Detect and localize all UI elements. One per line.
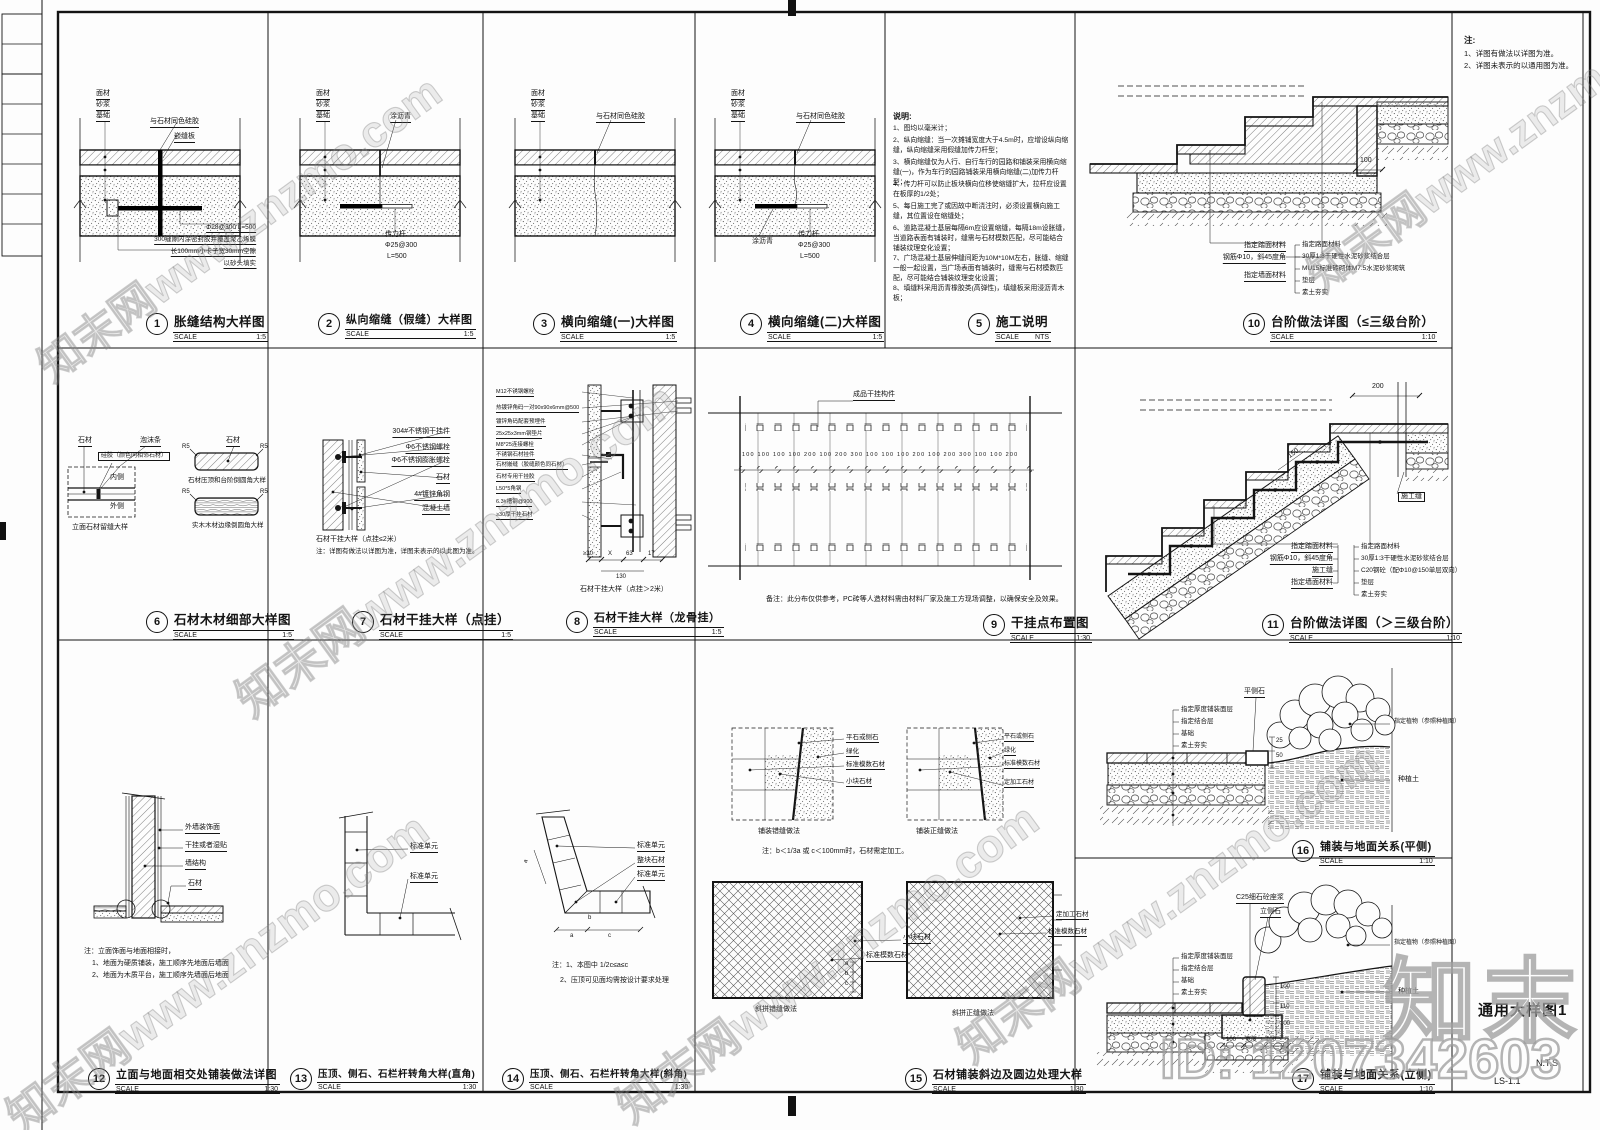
scale-value: 1:5 xyxy=(464,331,474,338)
callout-label: 指定路面材料 xyxy=(1302,241,1341,248)
spec-item: 8、填缝料采用沥青橡胶类(高弹性)，填缝板采用浸沥青木板； xyxy=(893,284,1069,304)
dim-label: c xyxy=(608,933,611,940)
detail-2-linework xyxy=(294,118,466,262)
note-text: 注：立面饰面与地面相接时， xyxy=(84,948,175,956)
callout-label: 标准单元 xyxy=(410,873,438,883)
detail-11-title: 11 台阶做法详图（＞三级台阶） SCALE1:10 xyxy=(1262,612,1462,643)
scale-value: 1:10 xyxy=(1446,635,1460,642)
detail-title-text: 台阶做法详图（≤三级台阶） xyxy=(1270,311,1437,333)
callout-label: Φ6不锈钢螺栓 xyxy=(406,444,450,454)
callout-label: 标准单元 xyxy=(637,842,665,852)
dim-label: 25 xyxy=(1276,738,1283,745)
callout-label: 指定踏面材料 xyxy=(1244,242,1286,252)
scale-label: SCALE xyxy=(174,632,197,639)
callout-label: 种植土 xyxy=(1398,988,1419,996)
layer-label: 砂浆 xyxy=(316,101,330,111)
scale-value: 1:5 xyxy=(873,334,883,341)
note-label: 以砂头填实 xyxy=(224,260,257,269)
callout-label: MU15标准砖砌体M7.5水泥砂浆砌筑 xyxy=(1302,265,1405,272)
detail-number: 2 xyxy=(318,313,340,335)
dim-label: 17 xyxy=(648,551,655,558)
detail-3-title: 3 横向缩缝(一)大样图 SCALE1:5 xyxy=(533,311,677,342)
note-label: Φ25@300 xyxy=(798,242,830,250)
callout-label: C25细石砼座浆 xyxy=(1236,894,1284,904)
scale-label: SCALE xyxy=(1011,635,1034,642)
detail-11-linework xyxy=(1106,382,1448,639)
detail-number: 3 xyxy=(533,313,555,335)
callout-label: 304#不锈钢干挂件 xyxy=(392,428,450,438)
scale-label: SCALE xyxy=(933,1086,956,1093)
dim-label: a xyxy=(845,961,848,968)
detail-5-title: 5 施工说明 SCALENTS xyxy=(968,311,1051,342)
dim-label: 100 xyxy=(1360,157,1372,165)
callout-label: 绿化 xyxy=(1004,748,1016,756)
detail-12-linework xyxy=(94,793,223,922)
callout-label: 嵌缝板 xyxy=(174,133,195,143)
detail-title-text: 横向缩缝(一)大样图 xyxy=(560,311,677,333)
strip-note-heading: 注: xyxy=(1464,36,1475,46)
caption: 石材干挂大样（点挂＞2米） xyxy=(580,586,668,594)
scale-value: 1:10 xyxy=(1419,858,1433,865)
scale-value: 1:30 xyxy=(1076,635,1090,642)
spec-item: 6、道路混凝土基层每隔6m应设置缩缝，每隔18m设胀缝，当道路表面有铺装时，缝需… xyxy=(893,224,1069,255)
scale-label: SCALE xyxy=(116,1086,139,1093)
detail-title-text: 施工说明 xyxy=(995,311,1051,333)
callout-label: 石材 xyxy=(188,880,202,890)
callout-label: 素土夯实 xyxy=(1181,742,1207,749)
callout-label: 指定厚度铺装面层 xyxy=(1181,953,1233,960)
drawing-sheet: 面材 砂浆 基础 与石材同色硅胶 嵌缝板 Φ28@300 L=500 300缝隙… xyxy=(0,0,1600,1130)
callout-label: C20钢砼（配Φ10@150单层双向） xyxy=(1361,567,1461,574)
dim-label: 63 xyxy=(626,551,633,558)
scale-value: 1:10 xyxy=(1419,1086,1433,1093)
detail-title-text: 压顶、侧石、石栏杆转角大样(直角) xyxy=(317,1066,478,1083)
detail-9-title: 9 干挂点布置图 SCALE1:30 xyxy=(983,612,1092,643)
note-text: 注：b＜1/3a 或 c＜100mm时，石材需定加工。 xyxy=(762,848,908,856)
note-label: 300缝隙内涂密封胶并覆盖聚乙烯膜 xyxy=(154,236,256,245)
callout-label: M8*25连接螺栓 xyxy=(496,442,534,450)
layer-label: 砂浆 xyxy=(96,101,110,111)
scale-value: 1:30 xyxy=(675,1084,689,1091)
detail-8-title: 8 石材干挂大样（龙骨挂） SCALE1:5 xyxy=(566,609,724,637)
dim-label: ≥30 xyxy=(583,551,593,558)
callout-label: 指定植物（参照种植图） xyxy=(1394,940,1460,947)
scale-value: 1:30 xyxy=(1070,1086,1084,1093)
scale-label: SCALE xyxy=(318,1084,341,1091)
detail-number: 1 xyxy=(146,313,168,335)
layer-label: 砂浆 xyxy=(531,101,545,111)
detail-number: 10 xyxy=(1243,313,1265,335)
callout-label: 石材 xyxy=(436,474,450,484)
callout-label: 垫层 xyxy=(1302,277,1315,284)
callout-label: 标准模数石材 xyxy=(846,761,885,770)
callout-label: 素土夯实 xyxy=(1181,989,1207,996)
radius-label: R5 xyxy=(182,489,190,496)
detail-4-linework xyxy=(709,118,881,262)
spec-item: 4、传力杆可以防止板块横向位移使缩缝扩大，拉杆应设置在板厚的1/2处； xyxy=(893,180,1069,200)
scale-value: 1:5 xyxy=(501,632,511,639)
detail-number: 8 xyxy=(566,611,588,633)
detail-8-linework xyxy=(582,385,691,571)
callout-label: 立侧石 xyxy=(1260,908,1281,918)
radius-label: R5 xyxy=(260,489,268,496)
detail-title-text: 压顶、侧石、石栏杆转角大样(斜角) xyxy=(529,1066,690,1083)
scale-value: 1:10 xyxy=(1422,334,1436,341)
note-label: L=500 xyxy=(800,253,820,261)
callout-label: ≥30厚干挂石材 xyxy=(496,512,533,520)
caption: 斜拼正缝做法 xyxy=(952,1010,994,1018)
callout-label: 外侧 xyxy=(110,503,124,511)
detail-title-text: 纵向缩缝（假缝）大样图 xyxy=(345,311,476,330)
callout-label: 种植土 xyxy=(1398,776,1419,784)
note-text: 2、压顶可见面均需按设计要求处理 xyxy=(560,977,669,985)
callout-label: 小块石材 xyxy=(846,778,872,787)
dim-label: 200 xyxy=(1372,383,1384,391)
caption: 铺装错缝做法 xyxy=(758,828,800,836)
callout-label: 内侧 xyxy=(110,474,124,482)
radius-label: R5 xyxy=(182,444,190,451)
scale-value: 1:30 xyxy=(463,1084,477,1091)
callout-label: 垫层 xyxy=(1361,579,1374,586)
callout-label: 石材嵌缝（胶缝颜色同石材） xyxy=(496,462,568,470)
sheet-name: 通用大样图1 xyxy=(1478,1002,1567,1019)
sheet-scale: N.T.S xyxy=(1536,1058,1558,1068)
detail-title-text: 干挂点布置图 xyxy=(1010,612,1092,634)
dim-label: 100 xyxy=(1266,1037,1276,1044)
callout-label: 与石材同色硅胶 xyxy=(150,118,199,128)
detail-title-text: 铺装与地面关系(平侧) xyxy=(1319,838,1435,857)
dim-label: 100 xyxy=(1226,1037,1236,1044)
layer-label: 面材 xyxy=(531,90,545,100)
callout-label: M12不锈钢螺栓 xyxy=(496,389,534,397)
scale-label: SCALE xyxy=(594,629,617,636)
scale-label: SCALE xyxy=(1320,858,1343,865)
callout-label: 平石或侧石 xyxy=(846,734,879,743)
callout-label: 平侧石 xyxy=(1244,688,1265,698)
spec-item: 7、广场混凝土基层伸缝间距为10M*10M左右，胀缝、缩缝一般一起设置，当广场表… xyxy=(893,254,1069,285)
callout-label: 30厚1:3干硬性水泥砂浆结合层 xyxy=(1302,253,1390,260)
sheet-number: LS-1.1 xyxy=(1494,1076,1521,1086)
callout-label: 素土夯实 xyxy=(1361,591,1387,598)
detail-title-text: 铺装与地面关系(立侧) xyxy=(1319,1066,1435,1085)
detail-13-linework xyxy=(339,812,461,940)
callout-label: 6.3#槽钢@900 xyxy=(496,499,532,507)
detail-16-title: 16 铺装与地面关系(平侧) SCALE1:10 xyxy=(1292,838,1435,866)
note-text: 注：详图有做法以详图为准，详图未表示的以此图为准。 xyxy=(316,548,479,555)
callout-label: 25x25x3mm钢垫片 xyxy=(496,431,542,439)
callout-label: 整块石材 xyxy=(637,857,665,867)
callout-label: 与石材同色硅胶 xyxy=(796,113,845,123)
scale-label: SCALE xyxy=(1290,635,1313,642)
detail-number: 16 xyxy=(1292,840,1314,862)
dim-label: X xyxy=(608,551,612,558)
scale-label: SCALE xyxy=(346,331,369,338)
detail-3-linework xyxy=(509,118,681,262)
layer-label: 基础 xyxy=(96,112,110,122)
strip-note: 2、详图未表示的以通用图为准。 xyxy=(1464,60,1573,72)
dim-label: c xyxy=(845,981,848,988)
callout-label: 指定厚度铺装面层 xyxy=(1181,706,1233,713)
detail-number: 6 xyxy=(146,611,168,633)
detail-17-title: 17 铺装与地面关系(立侧) SCALE1:10 xyxy=(1292,1066,1435,1094)
callout-label: 钢筋Φ10，斜45度角 xyxy=(1223,254,1286,264)
note-label: Φ25@300 xyxy=(385,242,417,250)
scale-value: 1:5 xyxy=(282,632,292,639)
callout-label: 指定结合层 xyxy=(1181,965,1214,972)
scale-label: SCALE xyxy=(174,334,197,341)
callout-label: 标准单元 xyxy=(637,871,665,881)
callout-label: 干挂或者湿贴 xyxy=(185,842,227,852)
detail-number: 9 xyxy=(983,614,1005,636)
dim-label: 50 xyxy=(1276,753,1283,760)
detail-7-title: 7 石材干挂大样（点挂） SCALE1:5 xyxy=(352,609,513,640)
spec-item: 5、每日施工完了或因故中断浇注时，必须设置横向施工缝，其位置设在缩缝处； xyxy=(893,202,1069,222)
detail-title-text: 石材木材细部大样图 xyxy=(173,609,294,631)
callout-label: 成品干挂构件 xyxy=(853,391,895,401)
layer-label: 面材 xyxy=(731,90,745,100)
callout-label: 墙结构 xyxy=(185,860,206,870)
strip-note: 1、详图有做法以详图为准。 xyxy=(1464,48,1558,60)
callout-label: 镀锌角码配套预埋件 xyxy=(496,419,546,427)
dim-label: 宽度 xyxy=(1245,1037,1257,1044)
note-label: L=500 xyxy=(387,253,407,261)
callout-label: 硅胶（颜色同相邻石材） xyxy=(98,452,170,461)
callout-label: 指定结合层 xyxy=(1181,718,1214,725)
caption: 石材压顶和台阶倒圆角大样 xyxy=(188,477,266,484)
callout-label: 绿化 xyxy=(846,748,859,757)
dim-label: 100 xyxy=(1280,1021,1290,1028)
callout-label: 与石材同色硅胶 xyxy=(596,113,645,123)
scale-label: SCALE xyxy=(1320,1086,1343,1093)
callout-label: 素土夯实 xyxy=(1302,289,1328,296)
dim-label: a xyxy=(570,933,573,940)
detail-title-text: 立面与地面相交处铺装做法详图 xyxy=(115,1066,280,1085)
callout-label: 标准模数石材 xyxy=(1048,928,1087,937)
scale-value: 1:30 xyxy=(264,1086,278,1093)
callout-label: L50*5角钢 xyxy=(496,486,521,494)
detail-number: 13 xyxy=(290,1068,312,1090)
detail-title-text: 横向缩缝(二)大样图 xyxy=(767,311,884,333)
callout-label: 涂沥青 xyxy=(390,113,411,123)
callout-label: 标准模数石材 xyxy=(866,952,908,962)
dim-string: 100 100 100 100 200 100 200 300 100 100 … xyxy=(742,452,1018,458)
callout-label: 标准模数石材 xyxy=(1004,761,1040,769)
caption: 斜拼错缝做法 xyxy=(755,1006,797,1014)
layer-label: 面材 xyxy=(316,90,330,100)
dim-label: 130 xyxy=(616,574,626,581)
callout-label: 定加工石材 xyxy=(1056,911,1089,920)
note-label: 传力杆 xyxy=(798,231,819,239)
caption: 石材干挂大样（点挂≤2米） xyxy=(316,536,401,544)
callout-label: 指定踏面材料 xyxy=(1291,543,1333,553)
layer-label: 基础 xyxy=(316,112,330,122)
detail-number: 11 xyxy=(1262,614,1284,636)
layer-label: 基础 xyxy=(731,112,745,122)
detail-title-text: 石材干挂大样（点挂） xyxy=(379,609,513,631)
scale-label: SCALE xyxy=(996,334,1019,341)
detail-15-title: 15 石材铺装斜边及圆边处理大样 SCALE1:30 xyxy=(905,1066,1086,1094)
spec-item: 2、纵向缩缝：当一次摊铺宽度大于4.5m时，应增设纵向缩缝，纵向缩缝采用假缝加传… xyxy=(893,136,1069,156)
callout-label: 指定墙面材料 xyxy=(1244,272,1286,282)
detail-4-title: 4 横向缩缝(二)大样图 SCALE1:5 xyxy=(740,311,884,342)
detail-title-text: 台阶做法详图（＞三级台阶） xyxy=(1289,612,1462,634)
callout-label: 钢筋Φ10，斜45度角 xyxy=(1270,555,1333,565)
dim-label: 100 xyxy=(1280,984,1290,991)
detail-2-title: 2 纵向缩缝（假缝）大样图 SCALE1:5 xyxy=(318,311,476,339)
callout-label: 4#镀锌角钢 xyxy=(414,491,450,501)
note-label: 长100mm小卡子宽30mm空隙 xyxy=(171,248,256,257)
detail-number: 14 xyxy=(502,1068,524,1090)
scale-label: SCALE xyxy=(530,1084,553,1091)
radius-label: R5 xyxy=(260,444,268,451)
note-text: 2、地面为木质平台，施工顺序先墙面后地面 xyxy=(92,972,229,980)
scale-label: SCALE xyxy=(1271,334,1294,341)
callout-label: 泡沫条 xyxy=(140,437,161,447)
detail-9-linework xyxy=(708,396,1062,580)
detail-title-text: 胀缝结构大样图 xyxy=(173,311,268,333)
callout-label: 施工缝 xyxy=(1398,492,1425,502)
callout-label: 不锈钢石材挂件 xyxy=(496,452,535,460)
dim-label: b xyxy=(588,915,591,922)
detail-title-text: 石材铺装斜边及圆边处理大样 xyxy=(932,1066,1086,1085)
callout-label: 外墙装饰面 xyxy=(185,824,220,834)
callout-label: 基础 xyxy=(1181,730,1194,737)
callout-label: 施工缝 xyxy=(1312,567,1333,577)
callout-label: 热镀锌角码一对90x90x6mm@500 xyxy=(496,405,579,413)
callout-label: 石材专用干挂胶 xyxy=(496,474,535,482)
detail-number: 12 xyxy=(88,1068,110,1090)
detail-number: 17 xyxy=(1292,1068,1314,1090)
caption: 实木木材边缘倒圆角大样 xyxy=(192,522,264,529)
note-text: 1、地面为硬质铺装，施工顺序先地面后墙面 xyxy=(92,960,229,968)
callout-label: 基础 xyxy=(1181,977,1194,984)
callout-label: 石材 xyxy=(226,437,240,447)
detail-6-title: 6 石材木材细部大样图 SCALE1:5 xyxy=(146,609,294,640)
callout-label: 平石或侧石 xyxy=(1004,734,1034,742)
scale-label: SCALE xyxy=(380,632,403,639)
scale-label: SCALE xyxy=(768,334,791,341)
dim-label: 110 xyxy=(1280,1004,1290,1011)
note-text: 备注：此分布仅供参考，PC砖等人造材料需由材料厂家及施工方现场调整，以确保安全及… xyxy=(766,596,1063,604)
caption: 立面石材留缝大样 xyxy=(72,524,128,532)
callout-label: 混凝土墙 xyxy=(422,505,450,515)
caption: 铺装正缝做法 xyxy=(916,828,958,836)
callout-label: 涂沥青 xyxy=(752,238,773,246)
detail-13-title: 13 压顶、侧石、石栏杆转角大样(直角) SCALE1:30 xyxy=(290,1066,478,1092)
detail-title-text: 石材干挂大样（龙骨挂） xyxy=(593,609,724,628)
callout-label: 指定路面材料 xyxy=(1361,543,1400,550)
note-text: 注：1、本图中 1/2c≤a≤c xyxy=(552,962,628,970)
detail-17-linework xyxy=(1095,885,1392,1073)
note-label: 传力杆 xyxy=(385,231,406,239)
sheet-linework xyxy=(0,0,1600,1130)
callout-label: Φ6不锈钢膨胀螺栓 xyxy=(392,457,450,467)
detail-1-title: 1 胀缝结构大样图 SCALE1:5 xyxy=(146,311,268,342)
detail-14-title: 14 压顶、侧石、石栏杆转角大样(斜角) SCALE1:30 xyxy=(502,1066,690,1092)
scale-value: 1:5 xyxy=(666,334,676,341)
spec-item: 1、图均以毫米计； xyxy=(893,124,1069,134)
note-label: Φ28@300 L=500 xyxy=(206,224,256,233)
scale-label: SCALE xyxy=(561,334,584,341)
layer-label: 基础 xyxy=(531,112,545,122)
scale-value: 1:5 xyxy=(712,629,722,636)
spec-heading: 说明: xyxy=(893,112,912,121)
detail-10-title: 10 台阶做法详图（≤三级台阶） SCALE1:10 xyxy=(1243,311,1437,342)
callout-label: 定加工石材 xyxy=(1004,780,1034,788)
detail-number: 5 xyxy=(968,313,990,335)
callout-label: 石材 xyxy=(78,437,92,447)
callout-label: 标准单元 xyxy=(410,843,438,853)
detail-number: 7 xyxy=(352,611,374,633)
scale-value: 1:5 xyxy=(256,334,266,341)
callout-label: 30厚1:3干硬性水泥砂浆结合层 xyxy=(1361,555,1449,562)
scale-value: NTS xyxy=(1035,334,1049,341)
dim-label: b xyxy=(845,971,848,978)
callout-label: 指定墙面材料 xyxy=(1291,579,1333,589)
detail-number: 15 xyxy=(905,1068,927,1090)
layer-label: 面材 xyxy=(96,90,110,100)
layer-label: 砂浆 xyxy=(731,101,745,111)
callout-label: 小块石材 xyxy=(903,934,931,944)
detail-number: 4 xyxy=(740,313,762,335)
callout-label: 指定植物（参照种植图） xyxy=(1394,719,1460,726)
detail-12-title: 12 立面与地面相交处铺装做法详图 SCALE1:30 xyxy=(88,1066,280,1094)
